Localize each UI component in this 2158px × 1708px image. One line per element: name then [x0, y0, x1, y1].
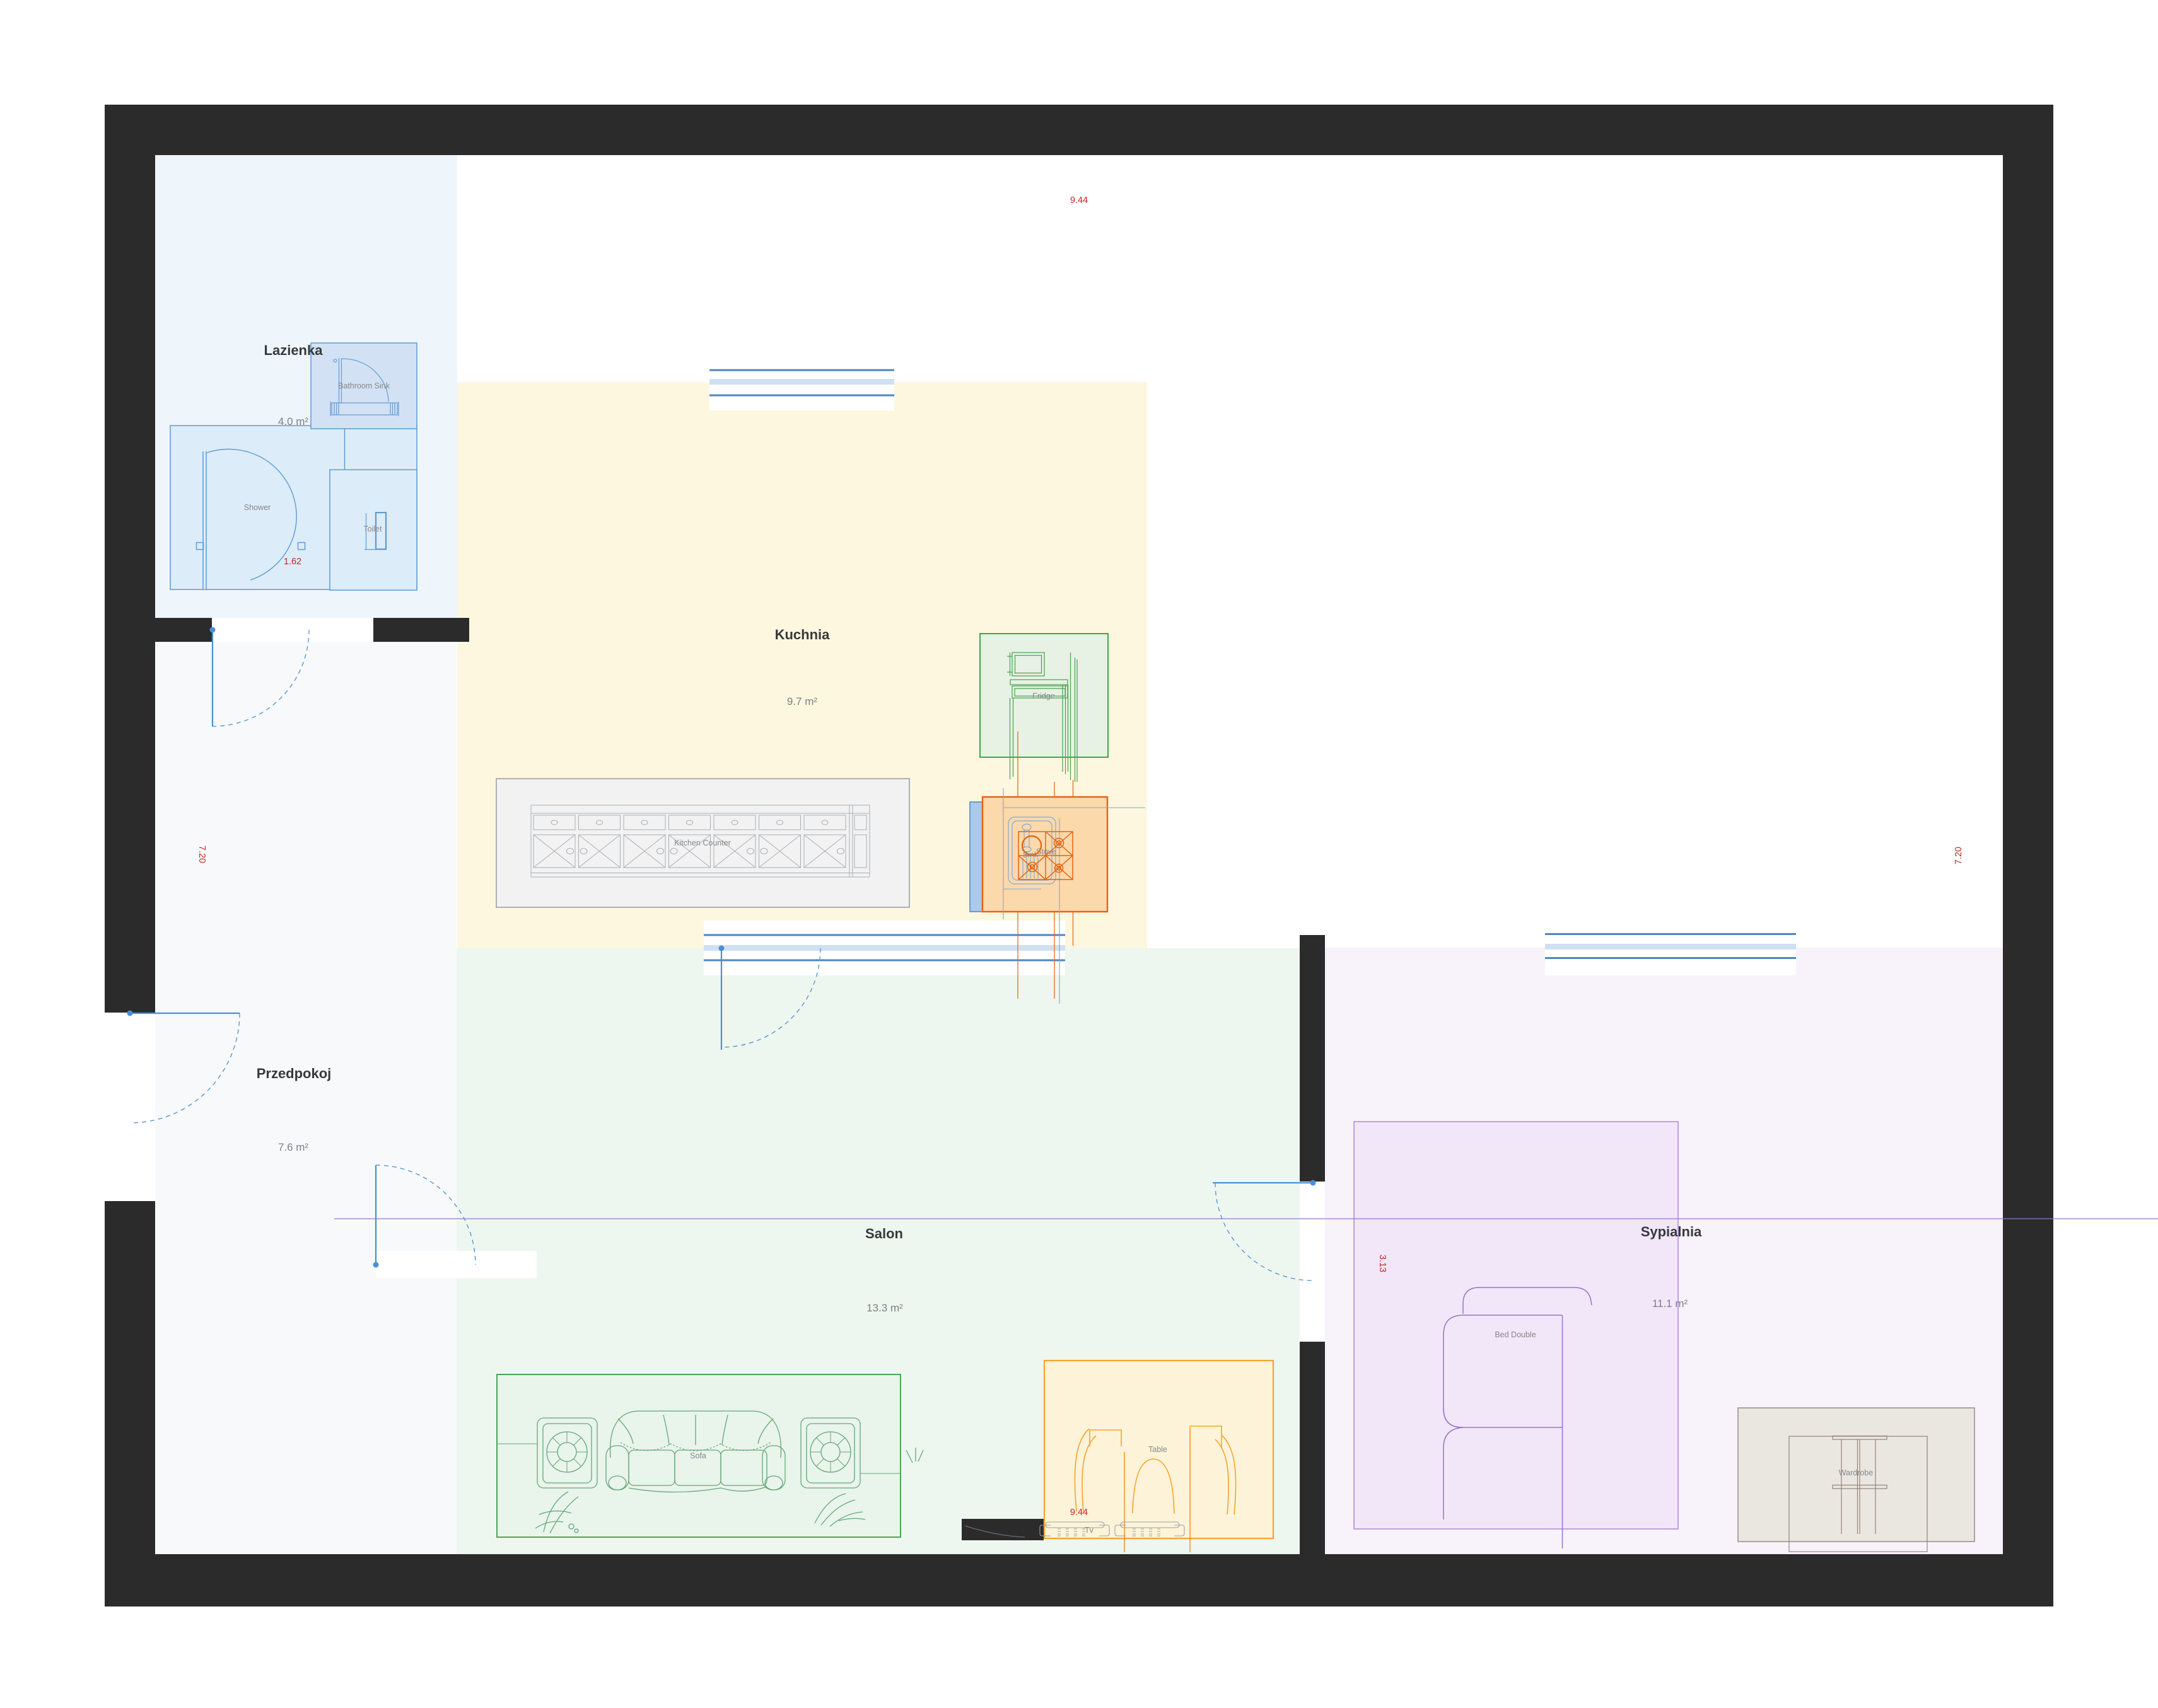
svg-text:Salon: Salon — [865, 1226, 903, 1241]
svg-text:Tv: Tv — [1085, 1526, 1094, 1535]
svg-text:Lazienka: Lazienka — [264, 342, 324, 358]
svg-text:Przedpokoj: Przedpokoj — [257, 1066, 332, 1081]
svg-text:9.7 m²: 9.7 m² — [787, 695, 818, 707]
svg-text:Kuchnia: Kuchnia — [775, 627, 831, 642]
svg-text:Bed Double: Bed Double — [1495, 1330, 1536, 1339]
svg-text:1.62: 1.62 — [284, 557, 301, 567]
svg-text:9.44: 9.44 — [1070, 1508, 1088, 1518]
svg-text:Sofa: Sofa — [690, 1451, 706, 1460]
svg-text:9.44: 9.44 — [1070, 195, 1088, 206]
svg-text:Stove: Stove — [1036, 847, 1056, 856]
svg-text:7.20: 7.20 — [1954, 847, 1964, 864]
svg-text:11.1 m²: 11.1 m² — [1652, 1298, 1688, 1310]
svg-text:Kitchen Counter: Kitchen Counter — [674, 839, 731, 847]
svg-text:Toilet: Toilet — [363, 525, 382, 533]
svg-text:7.20: 7.20 — [197, 845, 207, 863]
svg-text:7.6 m²: 7.6 m² — [278, 1141, 309, 1153]
svg-text:3.13: 3.13 — [1377, 1255, 1387, 1272]
svg-text:Wardrobe: Wardrobe — [1839, 1468, 1873, 1477]
svg-text:Bathroom Sink: Bathroom Sink — [338, 381, 390, 390]
svg-text:Shower: Shower — [244, 503, 271, 512]
svg-text:Sypialnia: Sypialnia — [1641, 1224, 1702, 1240]
svg-text:Fridge: Fridge — [1032, 692, 1054, 700]
svg-text:Table: Table — [1148, 1445, 1167, 1454]
svg-text:13.3 m²: 13.3 m² — [866, 1302, 903, 1314]
svg-text:4.0 m²: 4.0 m² — [278, 415, 309, 427]
